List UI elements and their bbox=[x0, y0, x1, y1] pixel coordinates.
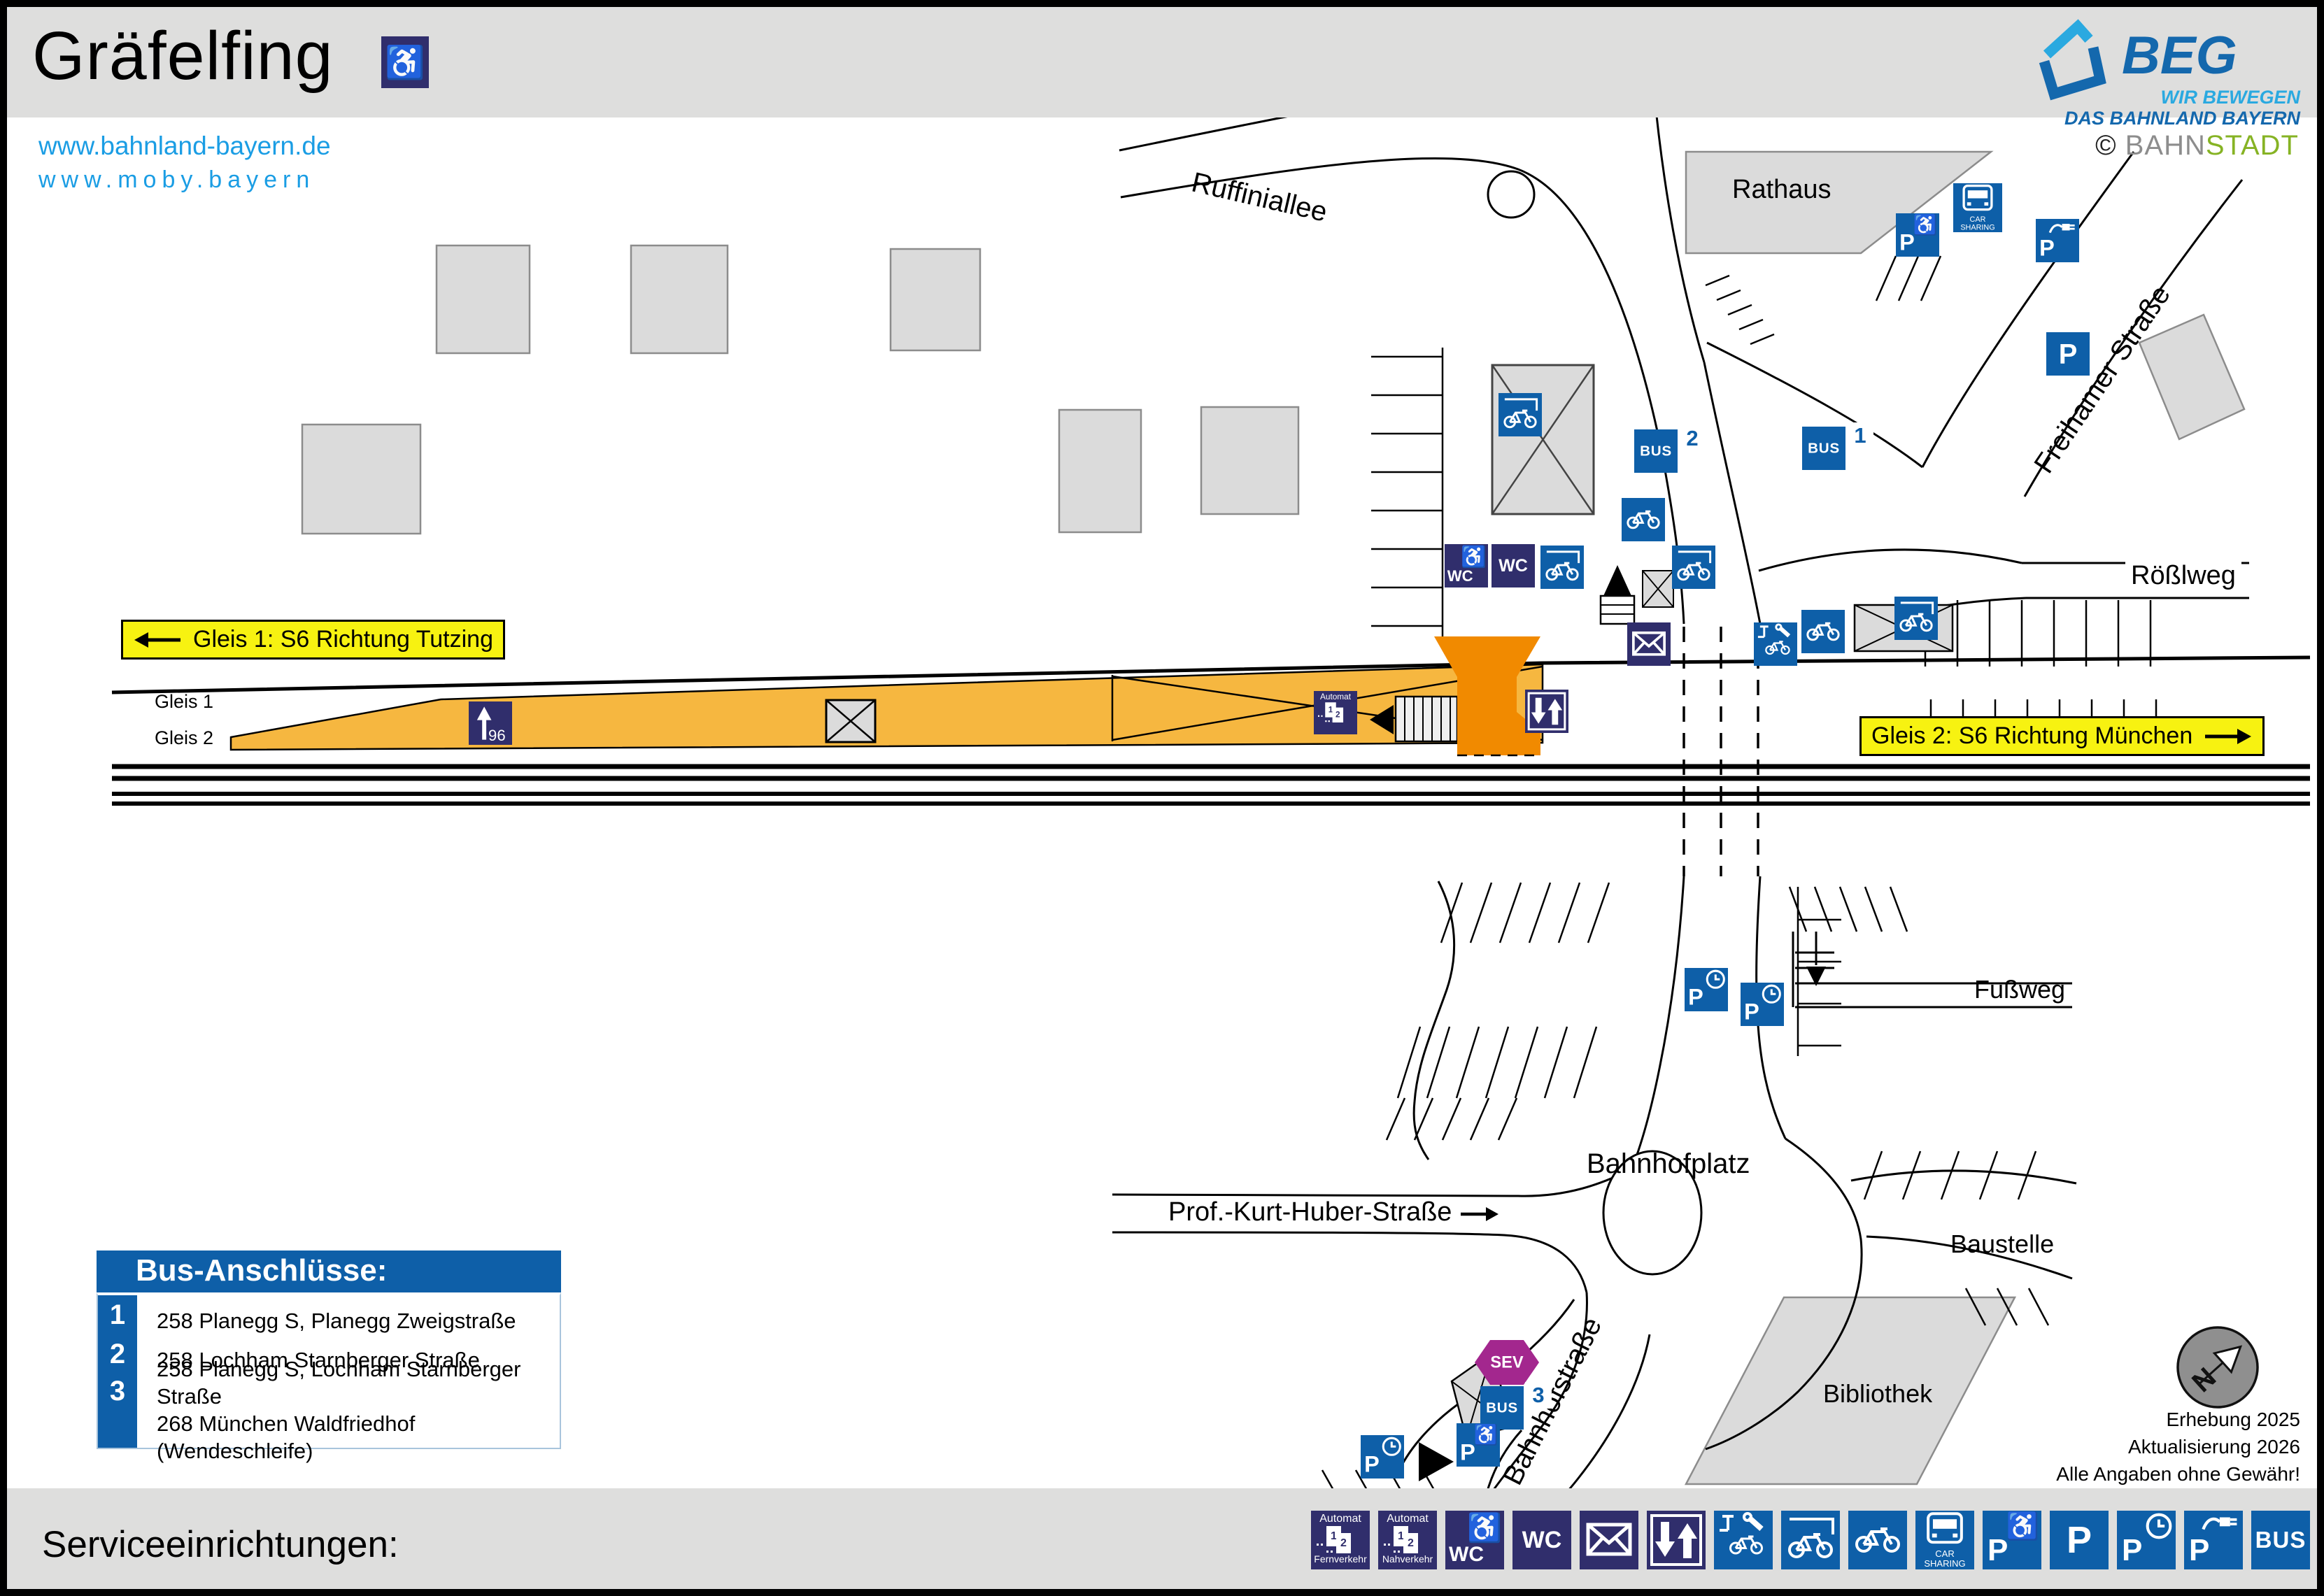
bus-stop-number: 1 bbox=[1847, 422, 1873, 449]
bus-legend-numbers: 123 bbox=[98, 1295, 137, 1448]
bus-stop-number: 3 bbox=[1525, 1382, 1552, 1409]
station-map-page: N Gräfelfing ♿ www.bahnland-bayern.de ww… bbox=[0, 0, 2324, 1596]
bus-legend-number: 1 bbox=[98, 1295, 137, 1334]
short-term-parking-icon: P bbox=[1361, 1435, 1404, 1479]
accessible-wc-icon: WC♿ bbox=[1445, 544, 1488, 587]
covered-bike-parking-icon bbox=[1540, 546, 1584, 589]
bike-parking-icon bbox=[1848, 1511, 1907, 1569]
bus-legend-row: 258 Planegg S, Lochham Starnberger Straß… bbox=[157, 1379, 560, 1441]
mailbox-icon bbox=[1627, 622, 1671, 666]
link-bahnland-bayern[interactable]: www.bahnland-bayern.de bbox=[38, 131, 331, 161]
beg-logo-mark bbox=[2034, 18, 2118, 102]
note-line: Aktualisierung 2026 bbox=[2056, 1433, 2300, 1460]
note-line: Erhebung 2025 bbox=[2056, 1406, 2300, 1433]
wc-icon: WC bbox=[1492, 544, 1535, 587]
note-line: Alle Angaben ohne Gewähr! bbox=[2056, 1460, 2300, 1488]
bahnstadt-credit: © BAHNSTADT bbox=[2095, 130, 2299, 162]
left-arrow-icon bbox=[133, 630, 182, 650]
service-icon-row: Automat12FernverkehrAutomat12NahverkehrW… bbox=[1311, 1511, 2310, 1569]
platform-height-96-icon: 96 bbox=[469, 701, 512, 745]
ticket-machine-icon: Automat12 bbox=[1314, 691, 1357, 734]
accessible-parking-icon: P♿ bbox=[1983, 1511, 2041, 1569]
beg-tagline-2: DAS BAHNLAND BAYERN bbox=[2064, 108, 2300, 129]
elevator-icon bbox=[1647, 1511, 1706, 1569]
bus-legend-number: 3 bbox=[98, 1374, 137, 1435]
short-term-parking-icon: P bbox=[2117, 1511, 2176, 1569]
page-title: Gräfelfing bbox=[32, 17, 334, 95]
wc-icon: WC bbox=[1512, 1511, 1571, 1569]
accessible-parking-icon: P♿ bbox=[1896, 213, 1939, 257]
ev-charging-parking-icon: P bbox=[2184, 1511, 2243, 1569]
website-links: www.bahnland-bayern.de www.moby.bayern bbox=[38, 131, 331, 199]
link-moby-bayern[interactable]: www.moby.bayern bbox=[38, 166, 331, 194]
beg-logo-text: BEG bbox=[2122, 25, 2237, 86]
ticket-machine-icon: Automat12Nahverkehr bbox=[1378, 1511, 1437, 1569]
beg-logo: BEG WIR BEWEGEN DAS BAHNLAND BAYERN bbox=[2034, 18, 2300, 116]
elevator-icon bbox=[1525, 690, 1568, 733]
covered-bike-parking-icon bbox=[1498, 393, 1542, 436]
parking-icon: P bbox=[2050, 1511, 2109, 1569]
gleis2-direction-label: Gleis 2: S6 Richtung München bbox=[1859, 716, 2265, 756]
covered-bike-parking-icon bbox=[1672, 546, 1715, 589]
svg-text:96: 96 bbox=[488, 727, 506, 744]
bus-stop-icon: BUS2 bbox=[1634, 429, 1678, 473]
ticket-machine-icon: Automat12Fernverkehr bbox=[1311, 1511, 1370, 1569]
accessible-wc-icon: WC♿ bbox=[1445, 1511, 1504, 1569]
bike-repair-station-icon bbox=[1714, 1511, 1773, 1569]
right-arrow-icon bbox=[2204, 727, 2253, 746]
bus-legend-row: 258 Planegg S, Planegg Zweigstraße bbox=[157, 1301, 560, 1340]
beg-tagline-1: WIR BEWEGEN bbox=[2161, 87, 2301, 108]
bike-repair-station-icon bbox=[1754, 622, 1797, 666]
wheelchair-icon: ♿ bbox=[381, 36, 429, 88]
covered-bike-parking-icon bbox=[1894, 597, 1938, 640]
gleis1-label: Gleis 1 bbox=[115, 691, 213, 713]
short-term-parking-icon: P bbox=[1685, 968, 1728, 1011]
bus-legend-rows: 258 Planegg S, Planegg Zweigstraße258 Lo… bbox=[137, 1295, 560, 1448]
short-term-parking-icon: P bbox=[1741, 983, 1784, 1026]
gleis1-direction-label: Gleis 1: S6 Richtung Tutzing bbox=[121, 620, 505, 660]
gleis2-label: Gleis 2 bbox=[115, 727, 213, 749]
car-sharing-icon: CARSHARING bbox=[1915, 1511, 1974, 1569]
services-label: Serviceeinrichtungen: bbox=[42, 1523, 399, 1566]
bike-parking-icon bbox=[1622, 498, 1665, 541]
ev-charging-parking-icon: P bbox=[2036, 219, 2079, 262]
bus-icon: BUS bbox=[2251, 1511, 2310, 1569]
bike-parking-icon bbox=[1801, 610, 1845, 653]
covered-bike-parking-icon bbox=[1781, 1511, 1840, 1569]
bus-stop-icon: BUS1 bbox=[1802, 427, 1845, 470]
accessible-parking-icon: P♿ bbox=[1457, 1423, 1500, 1467]
car-sharing-icon: CARSHARING bbox=[1953, 183, 2002, 232]
survey-notes: Erhebung 2025Aktualisierung 2026Alle Ang… bbox=[2056, 1406, 2300, 1488]
mailbox-icon bbox=[1580, 1511, 1638, 1569]
bus-connections-legend: Bus-Anschlüsse: 123 258 Planegg S, Plane… bbox=[97, 1251, 561, 1449]
bus-legend-number: 2 bbox=[98, 1334, 137, 1374]
parking-icon: P bbox=[2046, 332, 2090, 376]
bus-stop-number: 2 bbox=[1679, 425, 1706, 452]
bus-legend-title: Bus-Anschlüsse: bbox=[97, 1251, 561, 1292]
rail-replacement-icon: SEV bbox=[1475, 1340, 1539, 1385]
